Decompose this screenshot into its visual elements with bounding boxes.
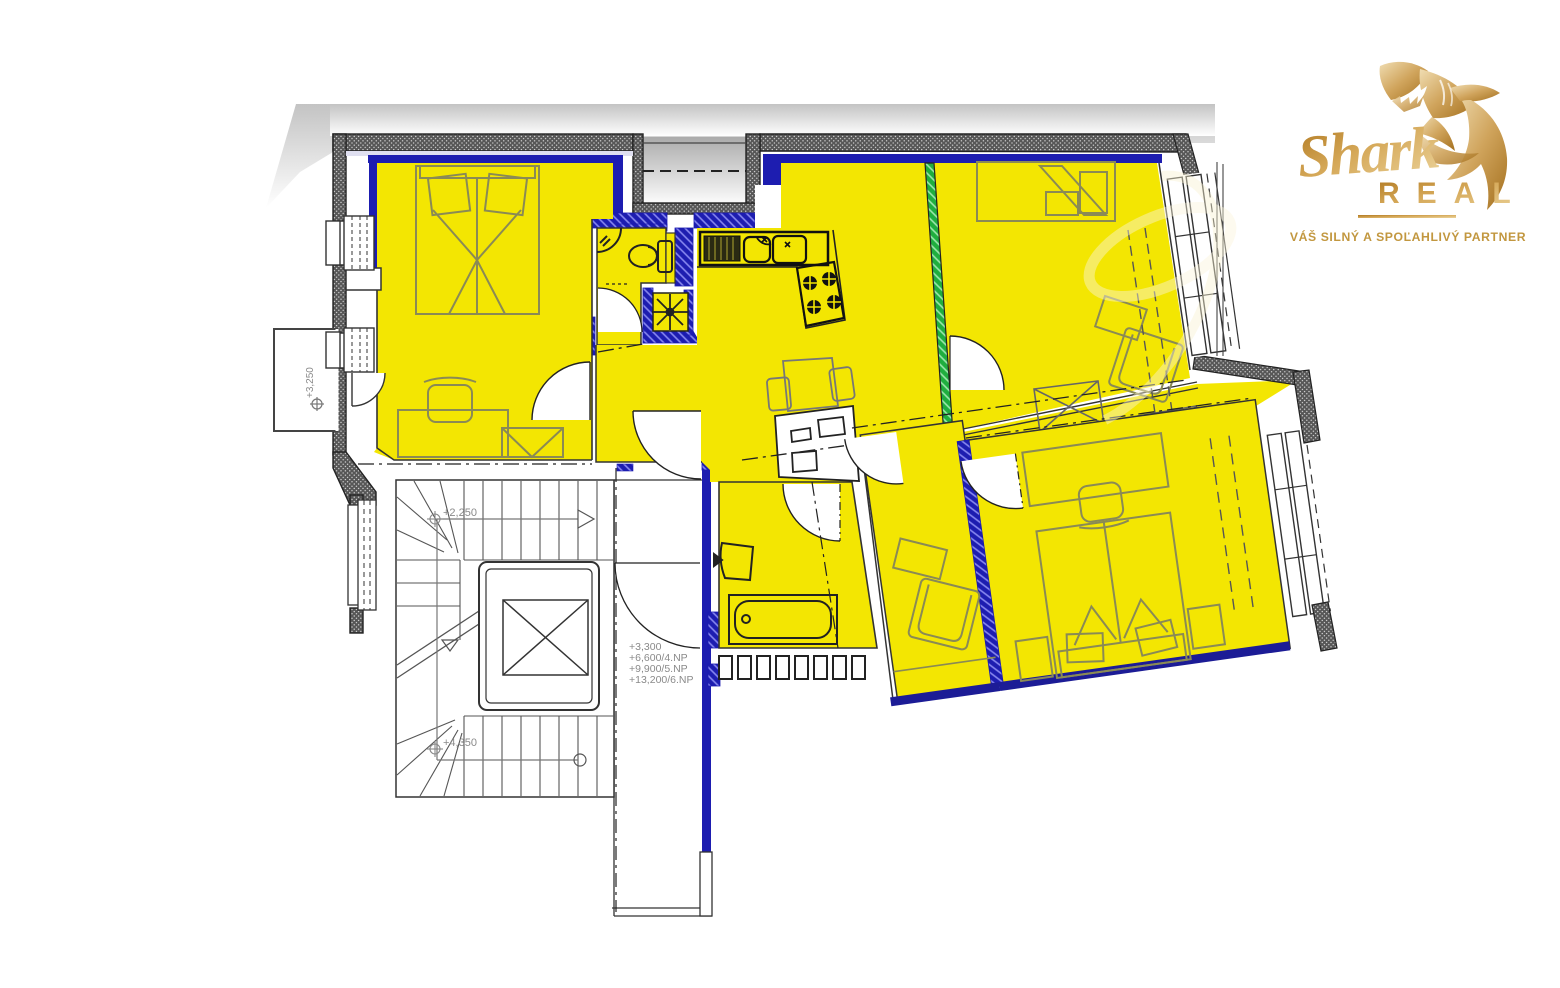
svg-text:+2,250: +2,250	[443, 507, 477, 519]
svg-text:VÁŠ SILNÝ A SPOĽAHLIVÝ PARTNER: VÁŠ SILNÝ A SPOĽAHLIVÝ PARTNER	[1290, 229, 1526, 244]
svg-text:REAL: REAL	[1378, 177, 1528, 210]
svg-text:+4,350: +4,350	[443, 737, 477, 749]
svg-text:+3,250: +3,250	[305, 367, 316, 398]
svg-text:+13,200/6.NP: +13,200/6.NP	[629, 674, 694, 686]
